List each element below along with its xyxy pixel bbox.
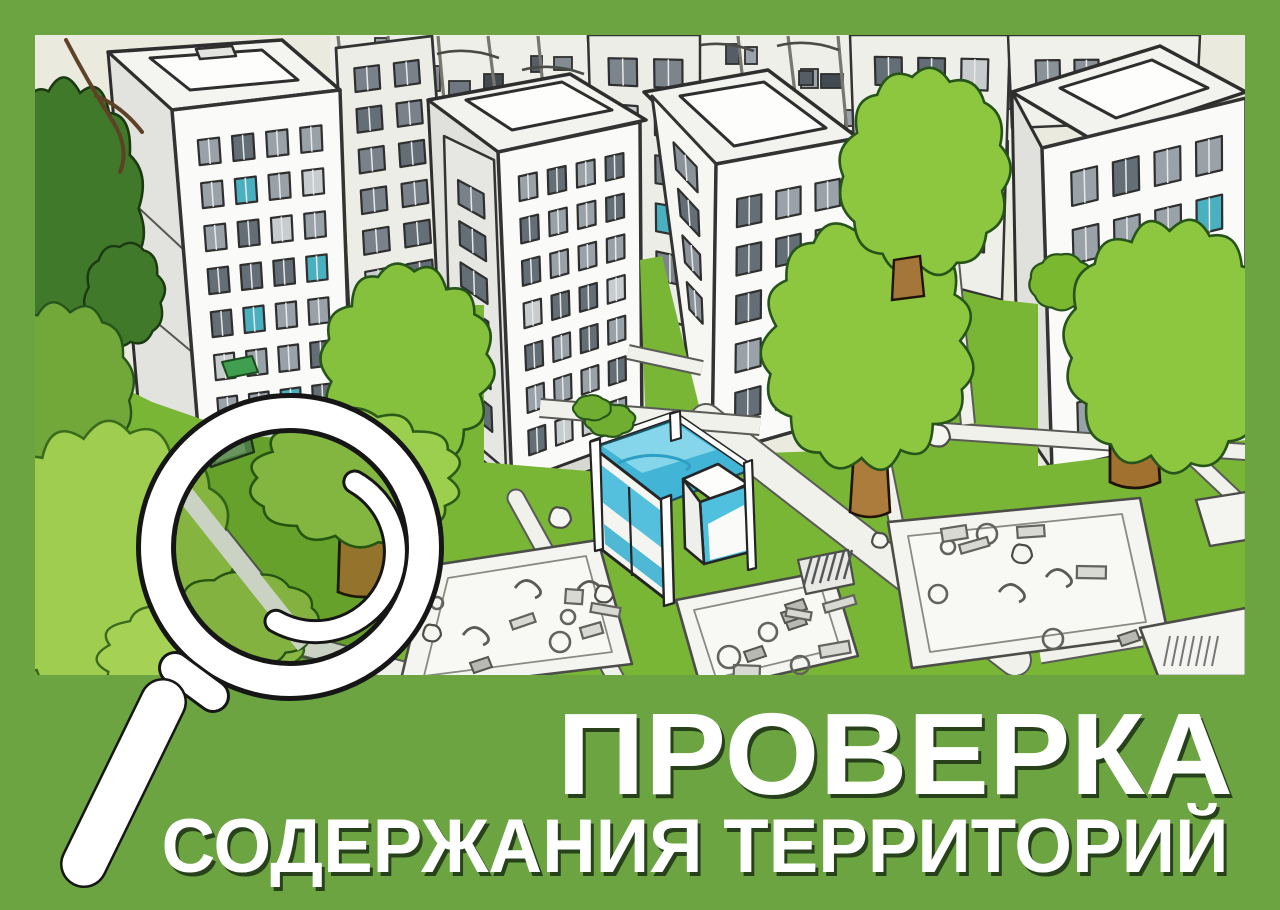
svg-text:ПРОВЕРКА: ПРОВЕРКА: [557, 689, 1233, 819]
svg-text:СОДЕРЖАНИЯ ТЕРРИТОРИЙ: СОДЕРЖАНИЯ ТЕРРИТОРИЙ: [162, 803, 1229, 889]
